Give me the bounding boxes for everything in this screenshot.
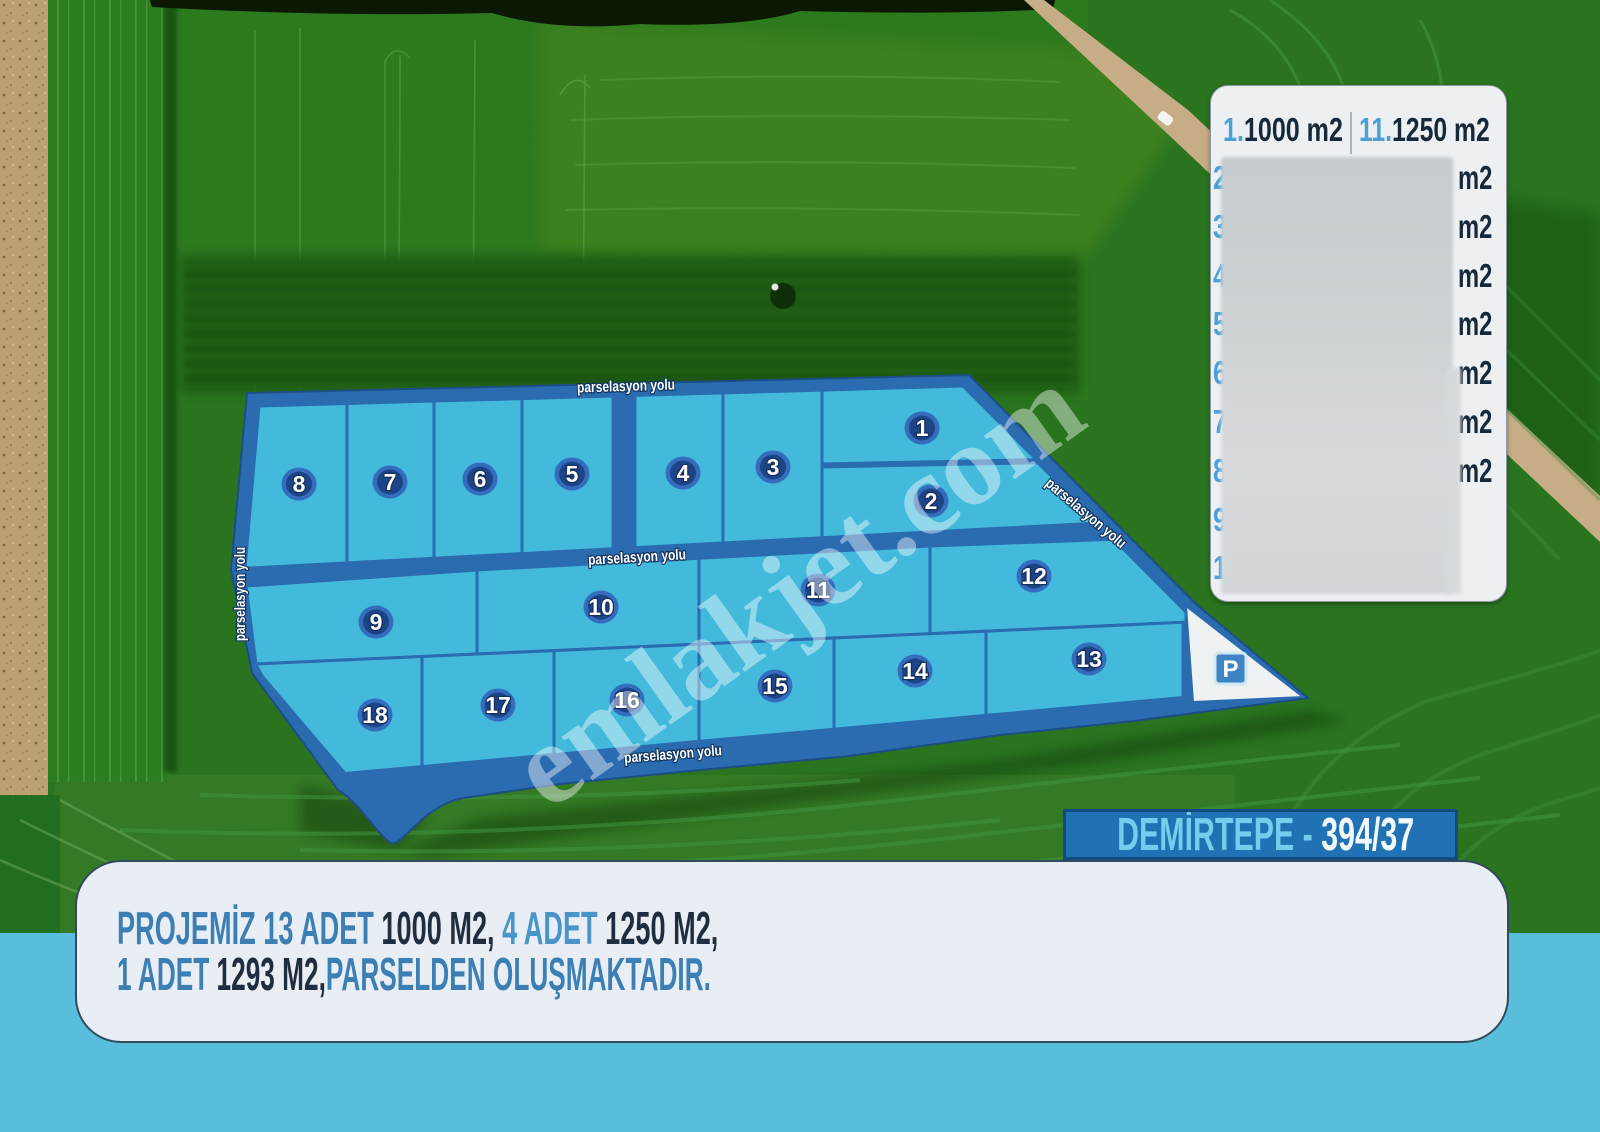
svg-text:13: 13: [1076, 646, 1102, 672]
svg-text:7: 7: [384, 469, 397, 495]
svg-text:5: 5: [566, 461, 579, 487]
svg-text:9: 9: [370, 609, 383, 635]
svg-text:17: 17: [485, 692, 511, 718]
svg-text:12: 12: [1021, 563, 1047, 589]
svg-text:3: 3: [767, 454, 780, 480]
svg-text:6: 6: [474, 466, 487, 492]
svg-text:14: 14: [902, 658, 928, 684]
svg-text:10: 10: [588, 594, 614, 620]
svg-text:P: P: [1222, 656, 1238, 683]
svg-text:8: 8: [293, 471, 306, 497]
svg-text:parselasyon yolu: parselasyon yolu: [232, 547, 249, 641]
svg-text:parselasyon yolu: parselasyon yolu: [577, 376, 675, 396]
svg-text:18: 18: [362, 702, 388, 728]
svg-text:4: 4: [677, 460, 690, 486]
